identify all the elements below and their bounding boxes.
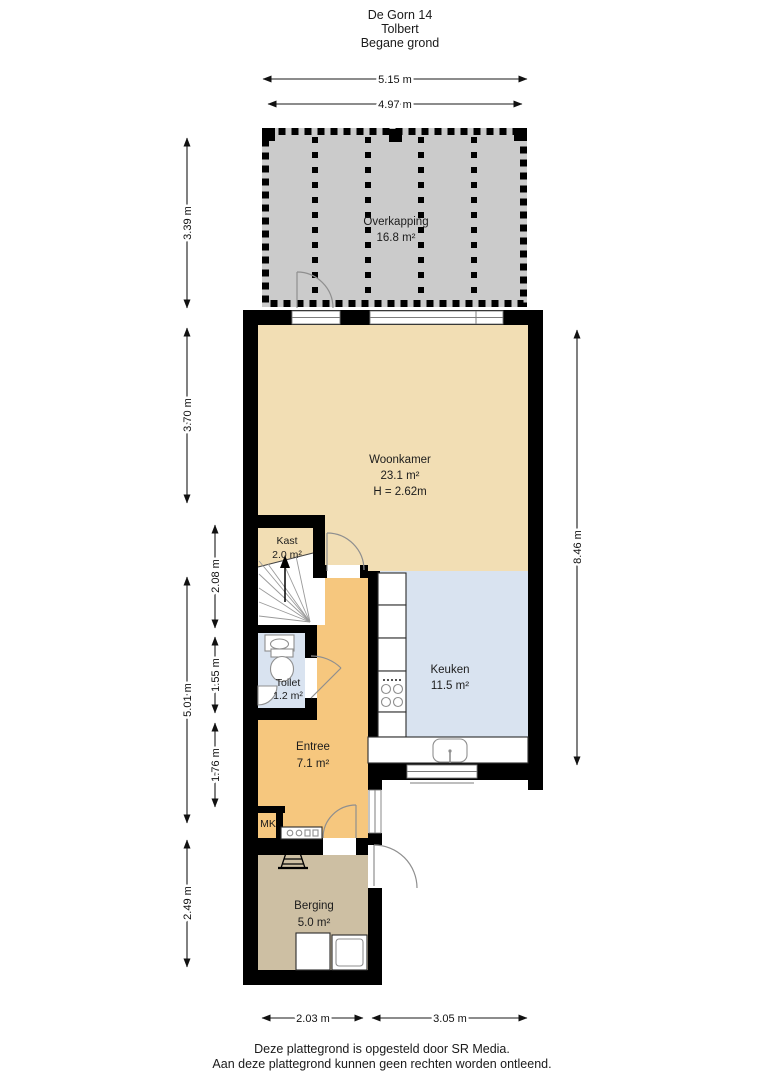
dim-canopy-inner: 4.97 m xyxy=(378,99,412,111)
footer-line1: Deze plattegrond is opgesteld door SR Me… xyxy=(254,1042,510,1056)
wall-entree-berging-left xyxy=(243,838,323,855)
wall-bottom xyxy=(243,970,382,985)
window-keuken-bottom xyxy=(407,765,477,783)
overkapping-area-label: 16.8 m² xyxy=(377,232,416,244)
plan-footer: Deze plattegrond is opgesteld door SR Me… xyxy=(212,1042,551,1071)
wall-right-lower-b xyxy=(368,833,382,845)
dim-bottom-right: 3.05 m xyxy=(433,1013,467,1025)
woonkamer-name-label: Woonkamer xyxy=(369,454,431,466)
room-overkapping: Overkapping 16.8 m² xyxy=(262,128,527,308)
opening-toilet xyxy=(305,658,317,698)
wall-left xyxy=(243,310,258,985)
dim-toilet-depth: 1.55 m xyxy=(210,658,222,692)
wall-right-lower-c xyxy=(368,888,382,970)
mk-label: MK xyxy=(260,818,276,830)
berging-area-label: 5.0 m² xyxy=(298,917,331,929)
washing-machine-door xyxy=(336,939,363,966)
kitchen-appliance-2 xyxy=(378,605,406,638)
room-entree-upper xyxy=(325,578,368,625)
overkapping-name-label: Overkapping xyxy=(363,216,428,228)
keuken-name-label: Keuken xyxy=(430,664,469,676)
woonkamer-area-label: 23.1 m² xyxy=(381,470,420,482)
cooktop xyxy=(378,671,406,712)
window-entree-right xyxy=(369,790,381,833)
toilet-name-label: Toilet xyxy=(276,677,301,689)
kitchen-counter-left xyxy=(378,638,406,671)
sink xyxy=(433,739,467,763)
floorplan-svg: De Gorn 14 Tolbert Begane grond Overkapp… xyxy=(0,0,764,1080)
woonkamer-ceiling-label: H = 2.62m xyxy=(373,486,426,498)
title-floor: Begane grond xyxy=(361,36,440,50)
wall-toilet-right-a xyxy=(305,625,317,658)
title-address: De Gorn 14 xyxy=(368,8,433,22)
meter-unit xyxy=(313,830,318,836)
dim-bottom-left: 2.03 m xyxy=(296,1013,330,1025)
toilet-cistern xyxy=(271,649,293,657)
dim-canopy-depth: 3.39 m xyxy=(182,206,194,240)
kast-name-label: Kast xyxy=(276,535,297,547)
plan-title: De Gorn 14 Tolbert Begane grond xyxy=(361,8,440,50)
floorplan-page: De Gorn 14 Tolbert Begane grond Overkapp… xyxy=(0,0,764,1080)
kitchen-appliance-1 xyxy=(378,573,406,605)
dim-entree-depth: 1.76 m xyxy=(210,748,222,782)
opening-berging-exterior xyxy=(368,845,382,888)
wall-right-lower-a xyxy=(368,780,382,790)
window-top-left xyxy=(292,311,340,324)
title-city: Tolbert xyxy=(381,22,419,36)
dim-lower-left: 5.01 m xyxy=(182,683,194,717)
entree-area-label: 7.1 m² xyxy=(297,758,330,770)
dim-right-height: 8.46 m xyxy=(572,530,584,564)
berging-name-label: Berging xyxy=(294,900,334,912)
meter-dial xyxy=(287,830,293,836)
toilet-area-label: 1.2 m² xyxy=(273,690,303,702)
window-top-right xyxy=(370,311,503,324)
footer-line2: Aan deze plattegrond kunnen geen rechten… xyxy=(212,1057,551,1071)
opening-woonkamer-entree xyxy=(327,565,360,578)
dim-woonkamer-depth: 3.70 m xyxy=(182,398,194,432)
dim-berging-depth: 2.49 m xyxy=(182,886,194,920)
canopy-post xyxy=(514,128,527,141)
wall-right-upper xyxy=(528,310,543,790)
opening-entree-berging xyxy=(323,838,356,855)
kast-area-label: 2.0 m² xyxy=(272,549,302,561)
dim-canopy-outer: 5.15 m xyxy=(378,74,412,86)
dim-kast-stairs: 2.08 m xyxy=(210,559,222,593)
meter-unit xyxy=(305,830,310,836)
meter-dial xyxy=(296,830,302,836)
canopy-post xyxy=(389,129,402,142)
entree-name-label: Entree xyxy=(296,741,330,753)
canopy-post xyxy=(262,128,275,141)
kitchen-counter-left-low xyxy=(378,712,406,737)
room-entree-mid xyxy=(317,625,368,720)
keuken-area-label: 11.5 m² xyxy=(431,680,469,692)
wall-woonkamer-entree-left xyxy=(313,565,327,578)
appliance-left xyxy=(296,933,330,970)
wall-toilet-bottom xyxy=(258,708,317,720)
toilet-basin-bowl xyxy=(271,639,289,649)
berging-fixtures xyxy=(296,933,367,970)
wall-entree-berging-right xyxy=(356,838,368,855)
